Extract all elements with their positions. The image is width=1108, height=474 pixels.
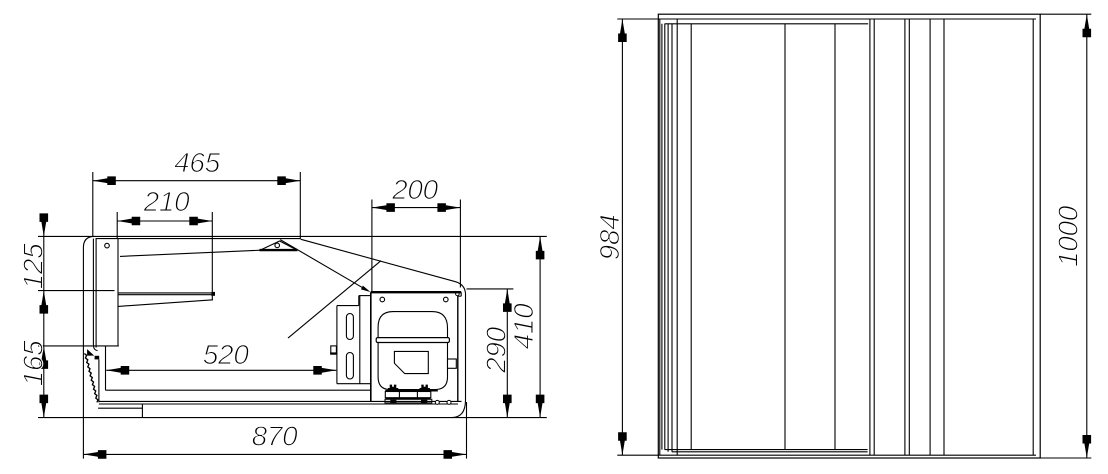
svg-text:200: 200 <box>391 174 439 205</box>
svg-text:290: 290 <box>481 326 512 374</box>
svg-text:984: 984 <box>594 215 625 261</box>
svg-text:1000: 1000 <box>1053 205 1084 267</box>
svg-text:465: 465 <box>174 147 221 178</box>
svg-text:870: 870 <box>252 421 299 452</box>
svg-text:165: 165 <box>18 340 49 387</box>
svg-text:125: 125 <box>18 243 49 290</box>
svg-text:210: 210 <box>143 186 191 217</box>
svg-text:520: 520 <box>203 339 250 370</box>
svg-text:410: 410 <box>508 303 539 350</box>
